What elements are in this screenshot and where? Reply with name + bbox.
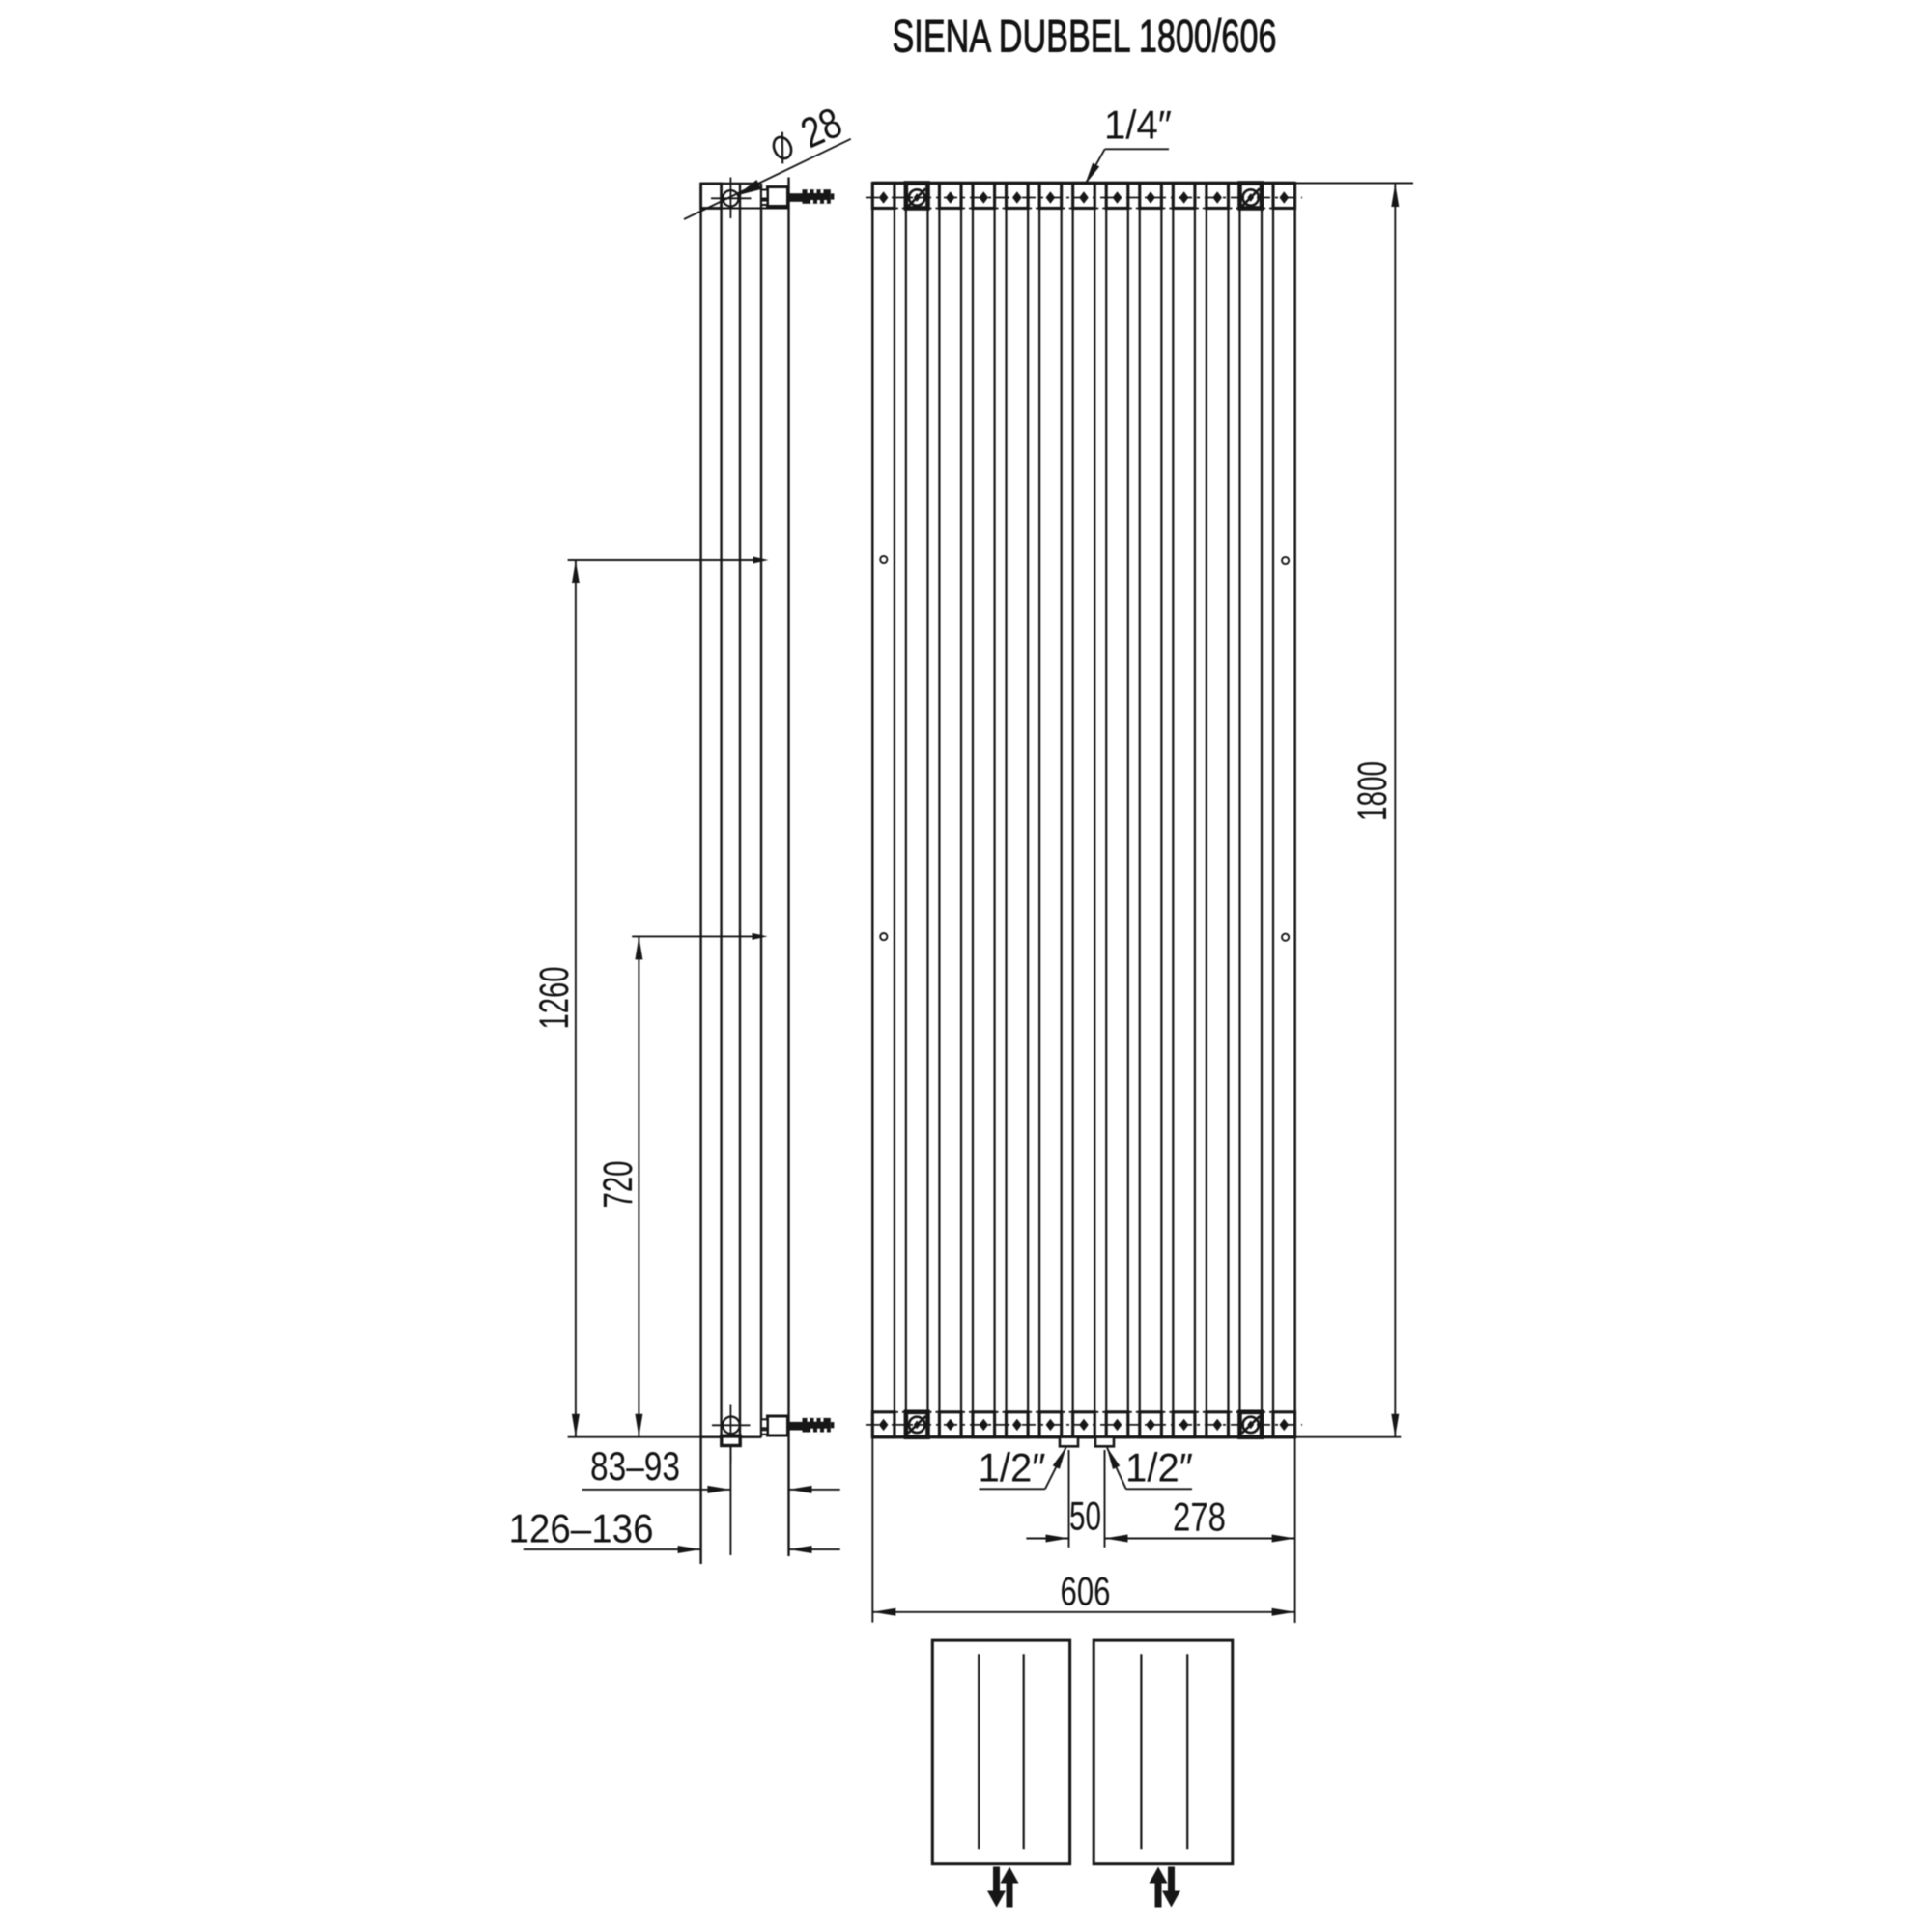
svg-text:83–93: 83–93 [590,1443,680,1489]
svg-text:1260: 1260 [531,967,578,1030]
svg-text:1800: 1800 [1350,761,1396,821]
svg-text:278: 278 [1173,1494,1226,1540]
svg-text:1/4″: 1/4″ [1104,102,1172,148]
svg-text:1/2″: 1/2″ [1125,1445,1193,1491]
svg-text:606: 606 [1061,1569,1111,1614]
svg-text:50: 50 [1069,1493,1101,1539]
svg-text:1/2″: 1/2″ [979,1445,1046,1491]
svg-text:126–136: 126–136 [509,1506,654,1551]
svg-text:SIENA DUBBEL 1800/606: SIENA DUBBEL 1800/606 [893,11,1277,62]
svg-text:720: 720 [595,1161,641,1208]
